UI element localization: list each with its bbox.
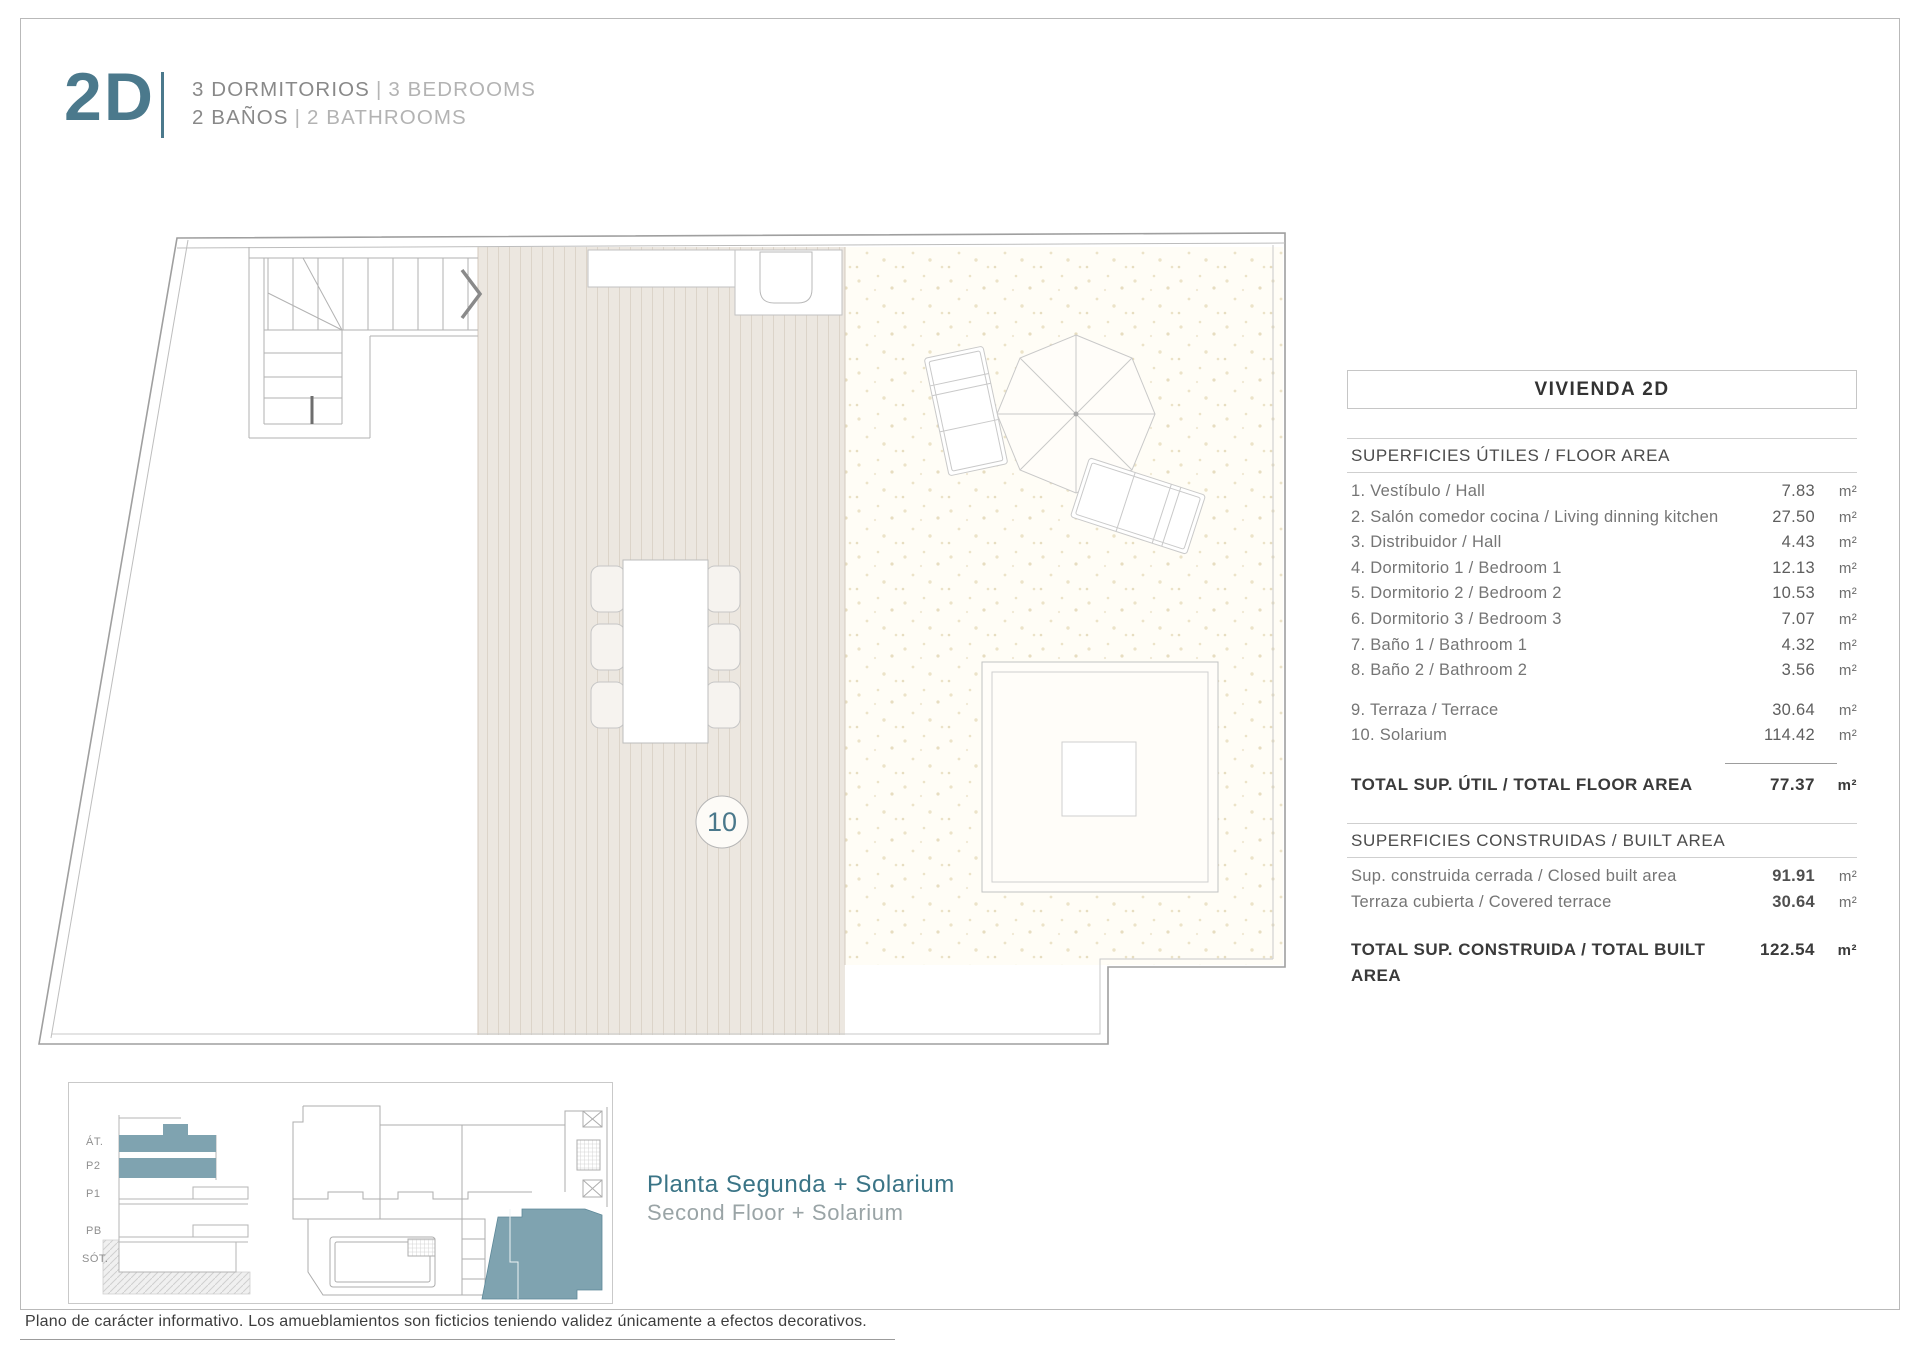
table-row: 8. Baño 2 / Bathroom 23.56m² bbox=[1351, 658, 1857, 684]
table-row: 5. Dormitorio 2 / Bedroom 210.53m² bbox=[1351, 581, 1857, 607]
built-area-header: SUPERFICIES CONSTRUIDAS / BUILT AREA bbox=[1347, 823, 1857, 858]
chair bbox=[706, 624, 740, 670]
dining-table bbox=[623, 560, 708, 743]
chair bbox=[591, 624, 625, 670]
floor-area-total-row: TOTAL SUP. ÚTIL / TOTAL FLOOR AREA 77.37… bbox=[1351, 772, 1857, 799]
table-row: Sup. construida cerrada / Closed built a… bbox=[1351, 864, 1857, 890]
total-rule bbox=[1725, 763, 1837, 764]
left-wall-inner-line bbox=[51, 240, 188, 1038]
shower-tray bbox=[760, 252, 812, 303]
area-table-panel: VIVIENDA 2D SUPERFICIES ÚTILES / FLOOR A… bbox=[1347, 370, 1857, 989]
level-label-p1: P1 bbox=[86, 1188, 100, 1200]
table-row: 2. Salón comedor cocina / Living dinning… bbox=[1351, 505, 1857, 531]
level-label-p2: P2 bbox=[86, 1160, 100, 1172]
disclaimer-rule bbox=[20, 1339, 895, 1340]
table-row: 6. Dormitorio 3 / Bedroom 37.07m² bbox=[1351, 607, 1857, 633]
built-area-total-value: 122.54 bbox=[1743, 937, 1815, 963]
dining-set bbox=[591, 560, 740, 743]
floor-area-total-value: 77.37 bbox=[1743, 772, 1815, 798]
floor-caption-es: Planta Segunda + Solarium bbox=[647, 1171, 955, 1199]
floor-caption-en: Second Floor + Solarium bbox=[647, 1200, 904, 1226]
bench-top bbox=[588, 250, 735, 287]
separator: | bbox=[289, 106, 307, 129]
unit-code: 2D bbox=[64, 58, 155, 136]
header-line-bathrooms: 2 BAÑOS|2 BATHROOMS bbox=[192, 104, 536, 132]
floor-area-rows: 1. Vestíbulo / Hall7.83m² 2. Salón comed… bbox=[1347, 473, 1857, 799]
bathrooms-es: 2 BAÑOS bbox=[192, 106, 289, 129]
floor-area-total-label: TOTAL SUP. ÚTIL / TOTAL FLOOR AREA bbox=[1351, 772, 1743, 798]
header-line-bedrooms: 3 DORMITORIOS|3 BEDROOMS bbox=[192, 76, 536, 104]
location-minimap: ÁT. P2 P1 PB SÓT. bbox=[68, 1082, 613, 1304]
bedrooms-en: 3 BEDROOMS bbox=[388, 78, 536, 101]
header-divider bbox=[161, 72, 164, 138]
table-row: 1. Vestíbulo / Hall7.83m² bbox=[1351, 479, 1857, 505]
skylight-structure bbox=[982, 662, 1218, 892]
chair bbox=[591, 566, 625, 612]
plan-sheet: 2D 3 DORMITORIOS|3 BEDROOMS 2 BAÑOS|2 BA… bbox=[0, 0, 1920, 1357]
built-area-rows: Sup. construida cerrada / Closed built a… bbox=[1347, 858, 1857, 989]
table-row: Terraza cubierta / Covered terrace30.64m… bbox=[1351, 890, 1857, 916]
level-label-sotano: SÓT. bbox=[82, 1252, 108, 1265]
table-title: VIVIENDA 2D bbox=[1347, 370, 1857, 409]
staircase bbox=[249, 247, 478, 438]
header-lines: 3 DORMITORIOS|3 BEDROOMS 2 BAÑOS|2 BATHR… bbox=[192, 76, 536, 132]
bathrooms-en: 2 BATHROOMS bbox=[307, 106, 467, 129]
bedrooms-es: 3 DORMITORIOS bbox=[192, 78, 370, 101]
level-label-atico: ÁT. bbox=[86, 1135, 103, 1148]
chair bbox=[706, 682, 740, 728]
floor-area-header: SUPERFICIES ÚTILES / FLOOR AREA bbox=[1347, 438, 1857, 473]
built-area-total-label: TOTAL SUP. CONSTRUIDA / TOTAL BUILT AREA bbox=[1351, 937, 1743, 989]
separator: | bbox=[370, 78, 388, 101]
disclaimer-text: Plano de carácter informativo. Los amueb… bbox=[25, 1313, 867, 1331]
table-row: 4. Dormitorio 1 / Bedroom 112.13m² bbox=[1351, 556, 1857, 582]
table-row: 10. Solarium114.42m² bbox=[1351, 723, 1857, 749]
built-area-total-row: TOTAL SUP. CONSTRUIDA / TOTAL BUILT AREA… bbox=[1351, 937, 1857, 989]
room-10-label: 10 bbox=[707, 807, 737, 837]
table-row: 3. Distribuidor / Hall4.43m² bbox=[1351, 530, 1857, 556]
room-number-bubble: 10 bbox=[696, 796, 748, 848]
level-label-pb: PB bbox=[86, 1225, 102, 1237]
chair bbox=[591, 682, 625, 728]
table-row: 7. Baño 1 / Bathroom 14.32m² bbox=[1351, 633, 1857, 659]
chair bbox=[706, 566, 740, 612]
parasol-umbrella bbox=[997, 335, 1155, 493]
floor-plan-drawing: 10 bbox=[25, 226, 1295, 1061]
highlighted-unit bbox=[482, 1209, 602, 1299]
table-row: 9. Terraza / Terrace30.64m² bbox=[1351, 698, 1857, 724]
stair-break-mark bbox=[462, 270, 480, 318]
